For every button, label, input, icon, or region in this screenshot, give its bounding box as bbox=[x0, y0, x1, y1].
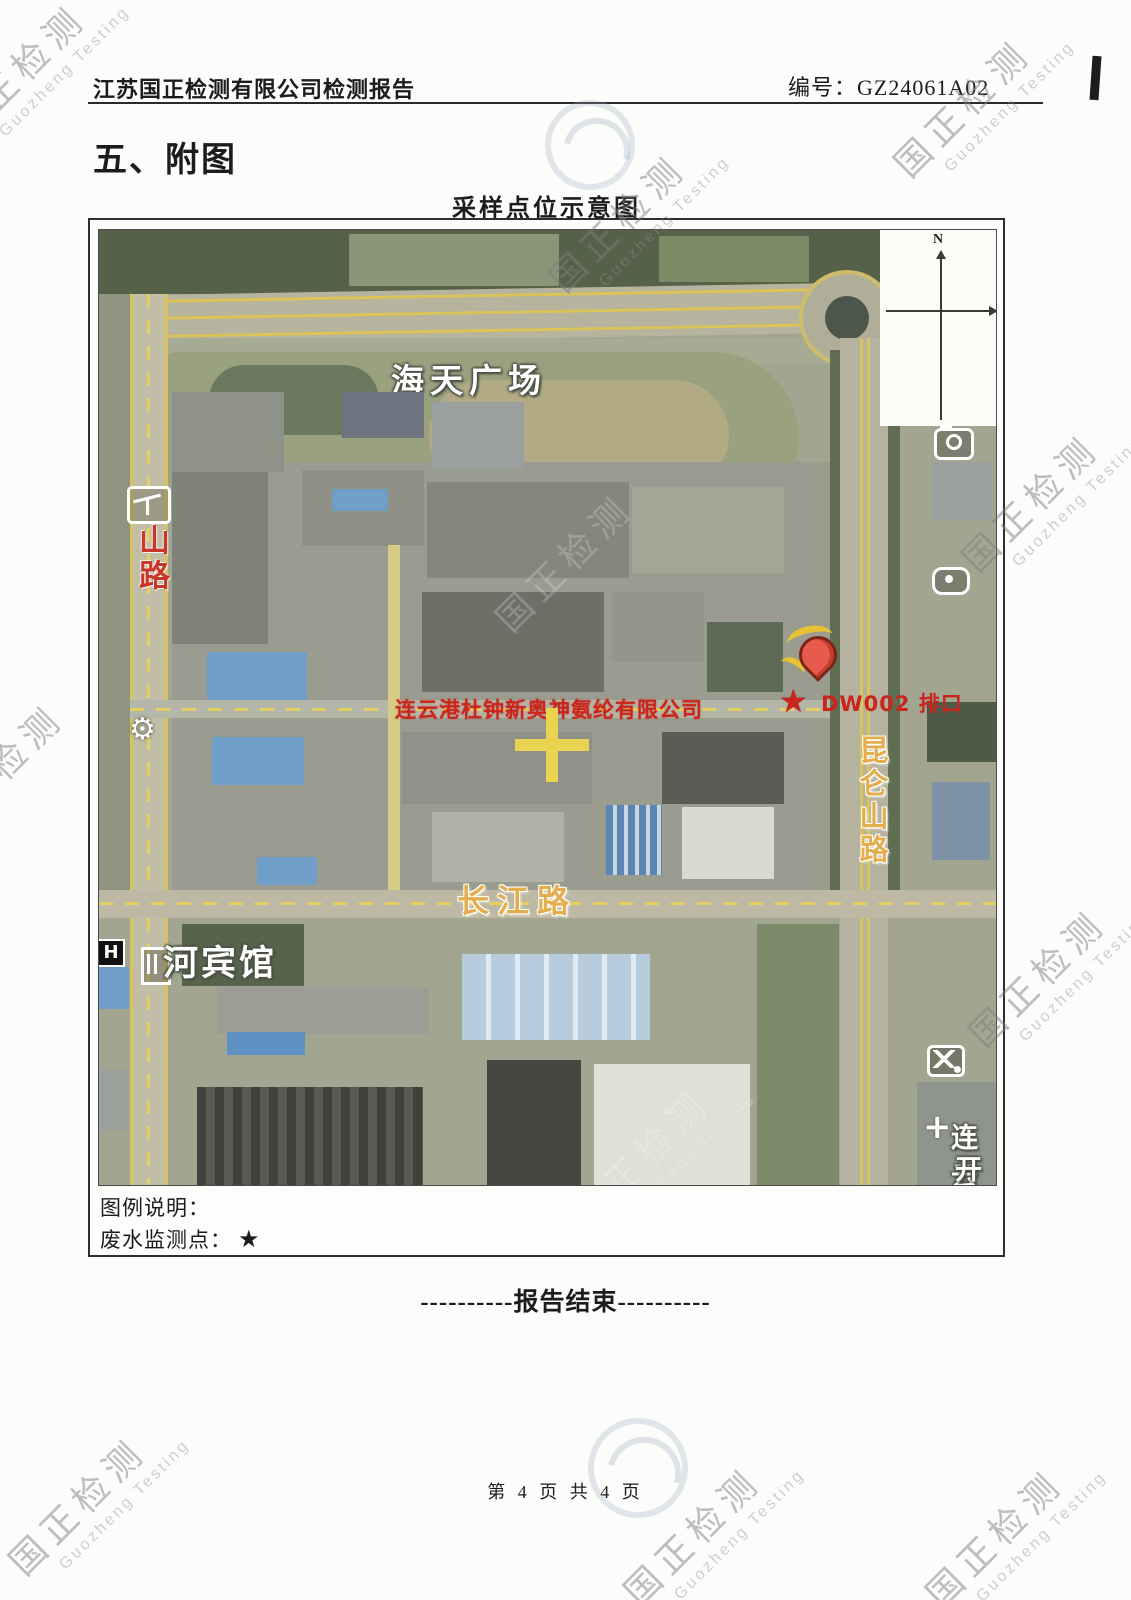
legend-item-label: 废水监测点： bbox=[100, 1228, 232, 1252]
building bbox=[632, 487, 784, 573]
building bbox=[172, 472, 268, 644]
scan-artifact bbox=[1089, 56, 1101, 101]
building bbox=[682, 807, 774, 879]
changjiang-road-label: 长江路 bbox=[457, 876, 577, 922]
kunlun-road-label: 昆仑山路 bbox=[851, 735, 893, 867]
header-company-title: 江苏国正检测有限公司检测报告 bbox=[93, 72, 415, 104]
green-lot bbox=[757, 924, 839, 1185]
gear-icon: ⚙ bbox=[129, 715, 156, 745]
company-cross-marker bbox=[515, 708, 589, 782]
legend-heading: 图例说明： bbox=[100, 1192, 210, 1222]
building-glass bbox=[462, 954, 650, 1040]
building-blue bbox=[257, 857, 317, 885]
compass-east-arrow bbox=[886, 310, 994, 312]
camera-icon bbox=[934, 428, 974, 460]
tree-strip bbox=[830, 350, 840, 890]
roundabout-center bbox=[825, 296, 869, 340]
building-white bbox=[594, 1064, 750, 1185]
building bbox=[432, 402, 524, 468]
page-number: 第 4 页 共 4 页 bbox=[0, 1478, 1131, 1504]
building bbox=[332, 489, 388, 511]
building bbox=[662, 732, 784, 804]
building-sawtooth bbox=[197, 1087, 423, 1185]
section-title: 五、附图 bbox=[93, 132, 237, 181]
watermark-en: Guozheng Testing bbox=[32, 1436, 194, 1598]
hotel-h-icon: H bbox=[98, 939, 125, 967]
plus-marker-icon: + bbox=[923, 1110, 952, 1144]
left-road-label: 山路 bbox=[129, 524, 174, 594]
watermark-cn: 国正检测 bbox=[0, 691, 74, 852]
outfall-star: ★ bbox=[779, 682, 808, 720]
building bbox=[612, 592, 704, 662]
building bbox=[932, 462, 992, 520]
terrain-patch bbox=[659, 236, 809, 282]
building bbox=[487, 1060, 581, 1185]
watermark-en: Guozheng Testing bbox=[985, 433, 1131, 595]
header-rule bbox=[88, 102, 1043, 104]
watermark-cn: 国正检测 bbox=[913, 1432, 1099, 1600]
watermark-en: Guozheng Testing bbox=[992, 908, 1131, 1070]
map-poi-icon bbox=[927, 1045, 965, 1077]
satellite-map: 海天广场 bbox=[98, 229, 997, 1186]
building bbox=[932, 782, 990, 860]
compass-north-arrow bbox=[940, 254, 942, 420]
building bbox=[217, 987, 429, 1034]
watermark: 国正检测 bbox=[0, 691, 74, 852]
building bbox=[432, 812, 564, 882]
legend-star-symbol: ★ bbox=[232, 1227, 261, 1253]
building bbox=[427, 482, 629, 578]
legend-item: 废水监测点：★ bbox=[100, 1224, 261, 1254]
watermark-logo bbox=[545, 100, 635, 190]
building bbox=[99, 1070, 127, 1130]
building bbox=[172, 392, 284, 472]
header-report-number: 编号：GZ24061A02 bbox=[788, 70, 989, 102]
building bbox=[99, 967, 129, 1009]
building-blue bbox=[207, 652, 307, 700]
poi-cube-icon bbox=[127, 486, 171, 524]
report-end-line: ----------报告结束---------- bbox=[0, 1282, 1131, 1318]
watermark-cn: 国正检测 bbox=[611, 1430, 797, 1600]
building bbox=[422, 592, 604, 692]
terrain-patch bbox=[349, 234, 559, 286]
hotel-label: 河宾馆 bbox=[163, 935, 277, 986]
watermark: 国正检测 Guozheng Testing bbox=[611, 1430, 809, 1600]
watermark-en: Guozheng Testing bbox=[917, 38, 1079, 200]
compass-box: N bbox=[880, 230, 996, 426]
corner-text-line2: 开发 bbox=[955, 1148, 996, 1186]
tree-patch bbox=[707, 622, 783, 692]
watermark: 国正检测 Guozheng Testing bbox=[913, 1432, 1111, 1600]
building-striped bbox=[606, 805, 662, 875]
figure-box: 海天广场 bbox=[88, 218, 1005, 1257]
building bbox=[342, 392, 424, 438]
report-page: 江苏国正检测有限公司检测报告 编号：GZ24061A02 五、附图 采样点位示意… bbox=[0, 0, 1131, 1600]
building-blue bbox=[212, 737, 304, 785]
left-edge-strip bbox=[99, 294, 130, 890]
outfall-label: DW002 排口 bbox=[821, 688, 963, 718]
panorama-camera-icon bbox=[932, 567, 970, 595]
building-blue bbox=[227, 1032, 305, 1055]
